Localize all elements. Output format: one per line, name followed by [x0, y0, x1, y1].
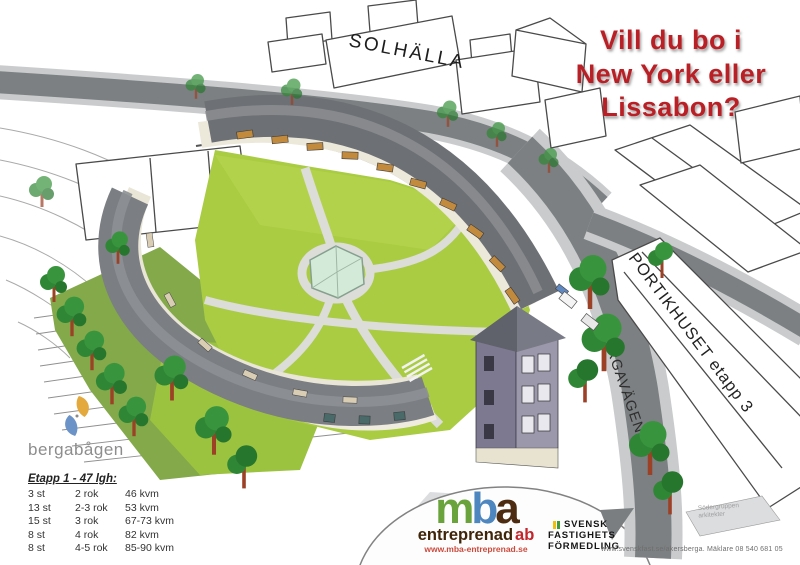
apt-size: 67-73 kvm [125, 515, 187, 527]
apt-count: 3 st [28, 488, 75, 500]
apartment-table: Etapp 1 - 47 lgh: 3 st 2 rok 46 kvm 13 s… [28, 473, 187, 554]
headline-line1: Vill du bo i [545, 24, 797, 58]
apt-size: 85-90 kvm [125, 542, 187, 554]
apartment-table-title: Etapp 1 - 47 lgh: [28, 473, 187, 485]
apt-rooms: 2 rok [75, 488, 125, 500]
sf-yellow-bar-icon [553, 521, 556, 529]
mba-url: www.mba-entreprenad.se [410, 544, 542, 554]
mba-logo-subtitle: entreprenadab [410, 528, 542, 543]
mba-logo: mba entreprenadab www.mba-entreprenad.se [410, 490, 542, 554]
apt-rooms: 4 rok [75, 529, 125, 541]
apt-count: 13 st [28, 502, 75, 514]
apt-count: 8 st [28, 529, 75, 541]
headline-line2: New York eller [545, 58, 797, 92]
apt-count: 15 st [28, 515, 75, 527]
apt-rooms: 4-5 rok [75, 542, 125, 554]
apt-count: 8 st [28, 542, 75, 554]
bergabagen-logo-icon [58, 394, 96, 438]
apt-size: 46 kvm [125, 488, 187, 500]
mba-logo-word: mba [410, 490, 542, 528]
apartment-table-grid: 3 st 2 rok 46 kvm 13 st 2-3 rok 53 kvm 1… [28, 488, 187, 554]
tower-building [470, 306, 566, 468]
poster: SOLHÄLLA Södergruppen arkitekter [0, 0, 800, 565]
headline-line3: Lissabon? [545, 91, 797, 125]
bergabagen-logo-text: bergabågen [28, 440, 148, 460]
bergabagen-logo: bergabågen [28, 394, 148, 460]
mba-ab-text: ab [515, 526, 534, 544]
headline: Vill du bo i New York eller Lissabon? [545, 24, 797, 125]
apt-size: 53 kvm [125, 502, 187, 514]
broker-contact-text: www.svenskfast.se/akersberga. Mäklare 08… [601, 546, 783, 553]
apt-rooms: 3 rok [75, 515, 125, 527]
sf-text-fastighets: FASTIGHETS [548, 531, 620, 542]
sf-green-bar-icon [557, 521, 560, 529]
apt-size: 82 kvm [125, 529, 187, 541]
apt-rooms: 2-3 rok [75, 502, 125, 514]
mba-entreprenad-text: entreprenad [418, 526, 513, 544]
